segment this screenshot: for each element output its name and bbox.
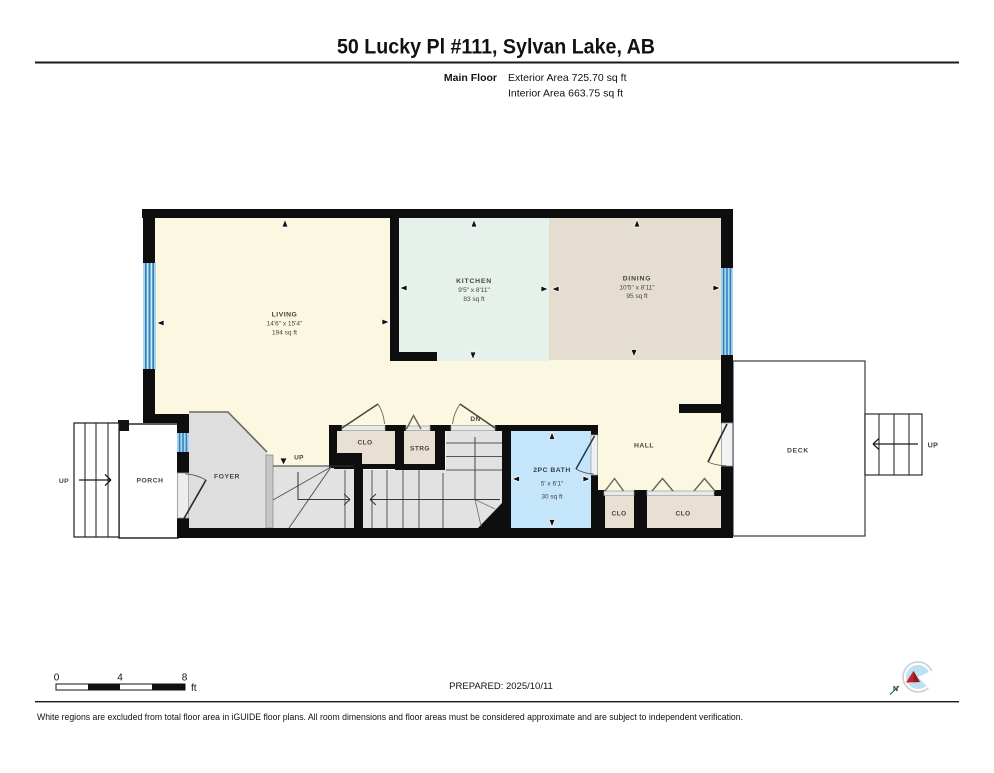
svg-text:PORCH: PORCH xyxy=(136,478,163,485)
svg-text:HALL: HALL xyxy=(634,443,654,450)
svg-text:2PC BATH: 2PC BATH xyxy=(533,467,570,474)
svg-text:ft: ft xyxy=(191,683,197,694)
svg-text:Interior Area 663.75 sq ft: Interior Area 663.75 sq ft xyxy=(508,88,623,100)
svg-text:30 sq ft: 30 sq ft xyxy=(541,494,563,501)
svg-text:4: 4 xyxy=(117,673,123,684)
svg-text:DINING: DINING xyxy=(623,276,652,283)
svg-text:STRG: STRG xyxy=(410,446,430,453)
svg-text:95 sq ft: 95 sq ft xyxy=(626,293,648,300)
svg-text:DN: DN xyxy=(470,416,480,423)
svg-text:5' x 6'1": 5' x 6'1" xyxy=(541,481,564,488)
svg-text:LIVING: LIVING xyxy=(272,312,298,319)
svg-text:194 sq ft: 194 sq ft xyxy=(272,330,297,337)
svg-text:UP: UP xyxy=(928,441,939,450)
svg-text:8: 8 xyxy=(182,673,188,684)
svg-text:FOYER: FOYER xyxy=(214,474,240,481)
svg-text:83 sq ft: 83 sq ft xyxy=(463,296,485,303)
svg-text:CLO: CLO xyxy=(611,511,626,518)
svg-text:Exterior Area 725.70 sq ft: Exterior Area 725.70 sq ft xyxy=(508,72,627,84)
svg-text:10'5" x 8'11": 10'5" x 8'11" xyxy=(619,285,655,292)
svg-text:0: 0 xyxy=(54,673,60,684)
svg-text:White regions are excluded fro: White regions are excluded from total fl… xyxy=(37,712,743,723)
svg-text:CLO: CLO xyxy=(675,511,690,518)
svg-text:UP: UP xyxy=(294,455,304,462)
svg-text:CLO: CLO xyxy=(357,440,372,447)
svg-text:9'5" x 8'11": 9'5" x 8'11" xyxy=(458,287,490,294)
svg-text:DECK: DECK xyxy=(787,448,809,455)
svg-text:Main Floor: Main Floor xyxy=(444,72,497,84)
svg-text:PREPARED: 2025/10/11: PREPARED: 2025/10/11 xyxy=(449,681,553,692)
svg-text:UP: UP xyxy=(59,478,69,485)
svg-text:14'6" x 15'4": 14'6" x 15'4" xyxy=(267,321,303,328)
svg-text:KITCHEN: KITCHEN xyxy=(456,278,492,285)
svg-text:50 Lucky Pl #111, Sylvan Lake,: 50 Lucky Pl #111, Sylvan Lake, AB xyxy=(337,35,655,59)
